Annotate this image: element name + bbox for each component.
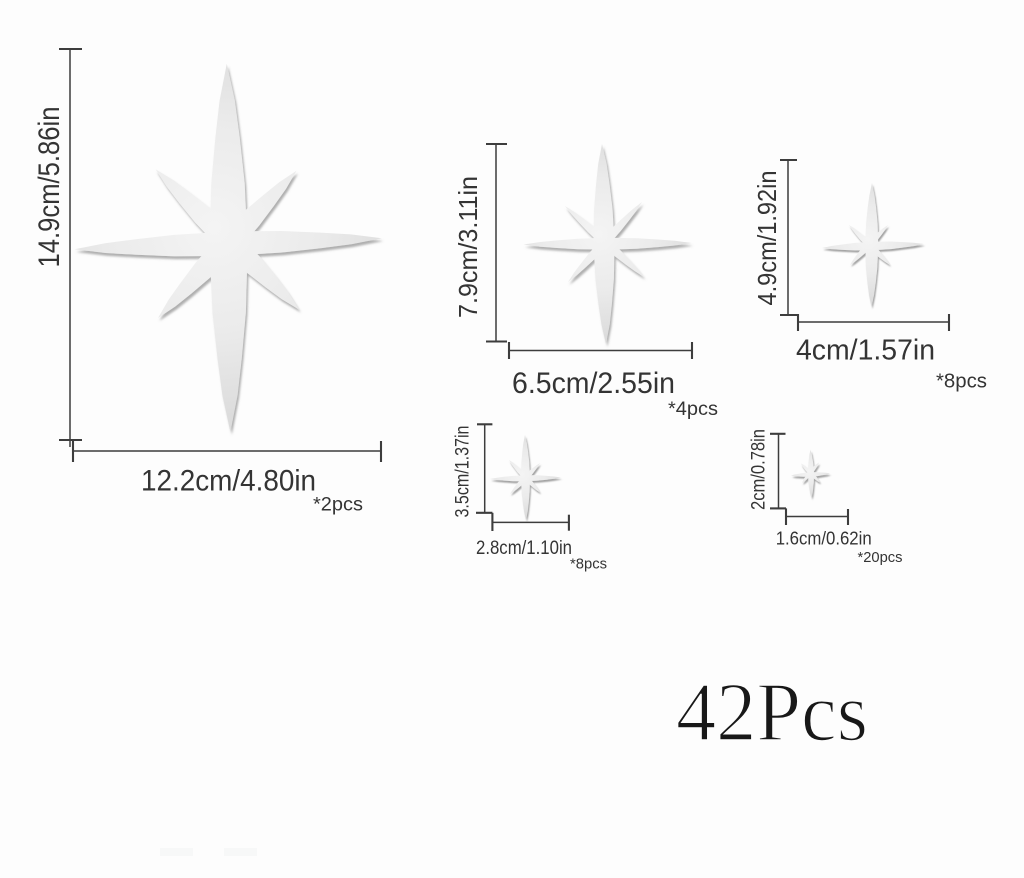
svg-text:*8pcs: *8pcs <box>570 556 607 573</box>
svg-text:2.8cm/1.10in: 2.8cm/1.10in <box>476 538 572 559</box>
svg-text:14.9cm/5.86in: 14.9cm/5.86in <box>33 107 66 268</box>
svg-text:2cm/0.78in: 2cm/0.78in <box>748 429 770 510</box>
svg-text:4.9cm/1.92in: 4.9cm/1.92in <box>752 171 782 306</box>
svg-text:42Pcs: 42Pcs <box>676 666 868 759</box>
svg-text:3.5cm/1.37in: 3.5cm/1.37in <box>452 426 474 518</box>
svg-text:6.5cm/2.55in: 6.5cm/2.55in <box>512 367 675 400</box>
svg-text:12.2cm/4.80in: 12.2cm/4.80in <box>141 465 316 498</box>
svg-text:*2pcs: *2pcs <box>313 495 363 516</box>
svg-text:7.9cm/3.11in: 7.9cm/3.11in <box>453 176 483 318</box>
svg-text:4cm/1.57in: 4cm/1.57in <box>796 334 935 366</box>
svg-text:*8pcs: *8pcs <box>936 371 987 393</box>
svg-text:*4pcs: *4pcs <box>668 399 718 420</box>
svg-text:1.6cm/0.62in: 1.6cm/0.62in <box>776 528 872 549</box>
svg-text:*20pcs: *20pcs <box>858 549 903 566</box>
